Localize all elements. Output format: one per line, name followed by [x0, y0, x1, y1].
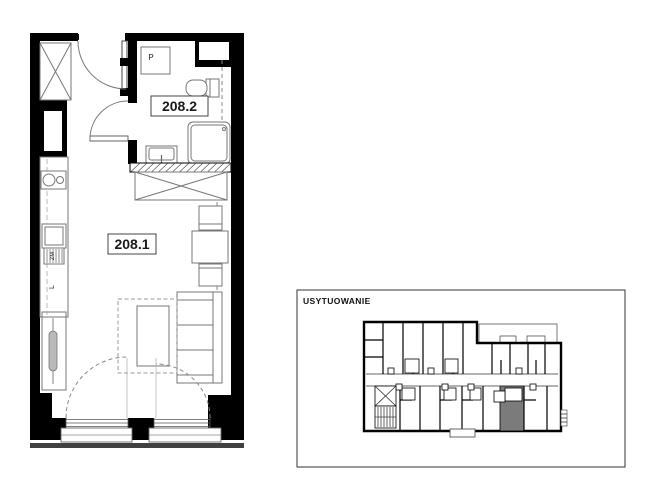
room-label-208-1: 208.1	[114, 236, 149, 252]
balcony-slab-edge	[30, 443, 244, 448]
entry-door	[78, 41, 128, 96]
location-panel: USYTUOWANIE	[297, 290, 625, 467]
kitchen-vent-label: ZM	[50, 252, 56, 260]
fridge-label: L	[49, 285, 56, 289]
bathroom-door	[90, 101, 128, 141]
staircase	[375, 406, 396, 428]
duct-shaft	[44, 111, 62, 151]
building-mini-plan	[364, 322, 567, 437]
entrance-bay	[450, 429, 475, 437]
kitchen-sink	[41, 171, 66, 189]
kitchen	[40, 157, 68, 317]
washing-machine-label: P	[148, 53, 153, 62]
cooktop	[42, 224, 66, 248]
partition-hatched-wall	[130, 163, 231, 172]
bathroom-sink	[146, 146, 177, 163]
dining-table	[192, 231, 228, 263]
room-label-208-2: 208.2	[162, 98, 197, 114]
radiator	[42, 312, 66, 390]
toilet	[186, 79, 219, 97]
highlighted-unit-bathroom	[505, 388, 522, 401]
sofa	[177, 292, 222, 383]
entry-wardrobe	[40, 43, 71, 100]
built-in-closet	[135, 172, 227, 200]
right-balcony-mark	[561, 410, 567, 426]
shower-drain	[223, 128, 226, 131]
dining-chair-top	[199, 206, 222, 230]
elevator	[375, 386, 396, 406]
apartment-plan: 208.2 208.1 P ZM L	[30, 33, 244, 448]
floor-plan-document: 208.2 208.1 P ZM L USYTUOWANIE	[0, 0, 648, 492]
dining-chair-bottom	[199, 264, 222, 286]
floor-plan-drawing: 208.2 208.1 P ZM L USYTUOWANIE	[0, 0, 648, 492]
washing-machine	[141, 47, 170, 74]
living-room	[42, 172, 228, 390]
location-panel-title: USYTUOWANIE	[303, 296, 371, 306]
shower-tray	[188, 122, 230, 164]
balcony-door-left	[61, 357, 132, 442]
